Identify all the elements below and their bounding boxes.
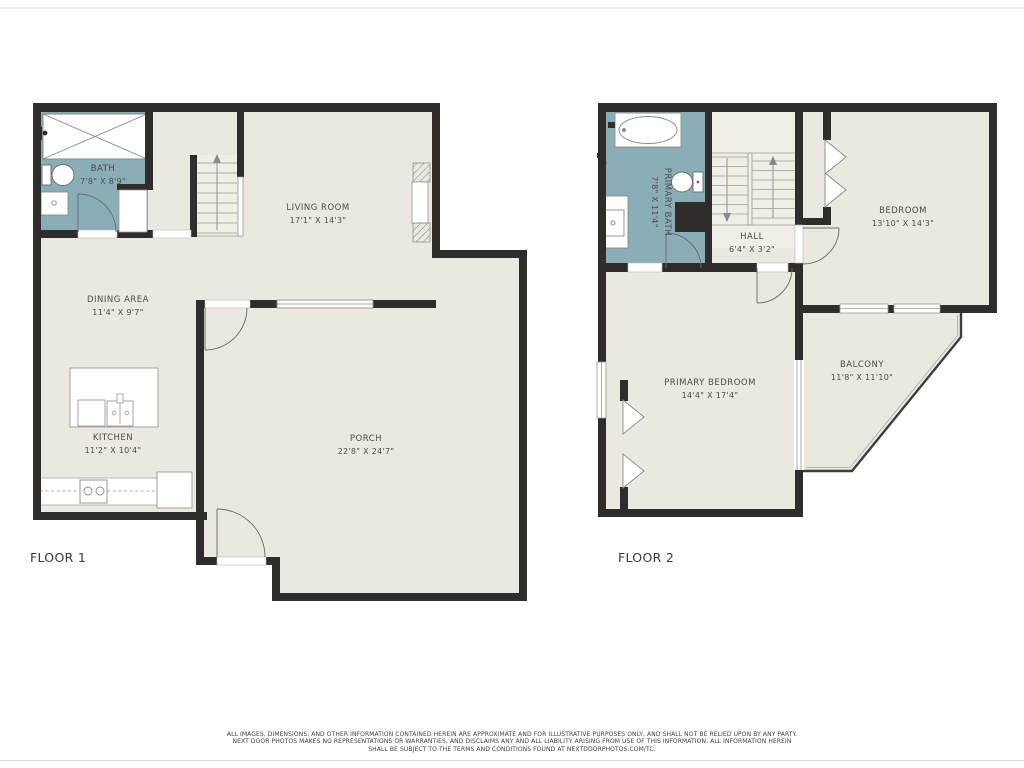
entry-closet (119, 190, 147, 232)
room-name: BALCONY (831, 360, 893, 370)
room-label-bedroom: BEDROOM 13'10" X 14'3" (872, 206, 934, 228)
floor1-label: FLOOR 1 (30, 550, 86, 565)
shower-icon (36, 114, 147, 159)
floor2-plan (597, 103, 997, 517)
room-label-porch: PORCH 22'8" X 24'7" (338, 434, 395, 456)
page-bottom-rule (0, 760, 1024, 761)
sink-icon (41, 192, 68, 215)
room-label-primary-bath: PRIMARY BATH 7'8" X 11'4" (650, 168, 672, 237)
room-name: KITCHEN (85, 433, 142, 443)
balcony-slider-door (794, 360, 804, 470)
disclaimer-text: ALL IMAGES, DIMENSIONS, AND OTHER INFORM… (0, 731, 1024, 753)
fireplace-icon (412, 163, 430, 242)
room-name: DINING AREA (87, 295, 149, 305)
room-name: PORCH (338, 434, 395, 444)
room-name: BEDROOM (872, 206, 934, 216)
room-dims: 22'8" X 24'7" (338, 447, 395, 456)
stair-rail (238, 177, 243, 236)
room-label-balcony: BALCONY 11'8" X 11'10" (831, 360, 893, 382)
room-label-kitchen: KITCHEN 11'2" X 10'4" (85, 433, 142, 455)
toilet-icon (42, 165, 74, 186)
room-dims: 14'4" X 17'4" (664, 391, 756, 400)
room-dims: 7'8" X 11'4" (650, 168, 659, 237)
page-top-rule (0, 8, 1024, 9)
room-name: HALL (729, 232, 775, 242)
toilet-icon (672, 172, 704, 192)
room-label-bath: BATH 7'8" X 8'9" (80, 164, 126, 186)
room-dims: 11'2" X 10'4" (85, 446, 142, 455)
room-name: PRIMARY BEDROOM (664, 378, 756, 388)
disclaimer-line-1: ALL IMAGES, DIMENSIONS, AND OTHER INFORM… (0, 731, 1024, 738)
room-name: PRIMARY BATH (662, 168, 672, 237)
room-dims: 6'4" X 3'2" (729, 245, 775, 254)
bathtub-icon (608, 113, 681, 147)
left-wall-window (597, 362, 606, 418)
balcony-floor (803, 313, 961, 471)
room-dims: 11'8" X 11'10" (831, 373, 893, 382)
room-name: LIVING ROOM (286, 203, 349, 213)
room-dims: 13'10" X 14'3" (872, 219, 934, 228)
room-label-dining-area: DINING AREA 11'4" X 9'7" (87, 295, 149, 317)
room-dims: 11'4" X 9'7" (87, 308, 149, 317)
hall-threshold (153, 230, 191, 238)
disclaimer-line-2: NEXT DOOR PHOTOS MAKES NO REPRESENTATION… (0, 738, 1024, 745)
disclaimer-line-3: SHALL BE SUBJECT TO THE TERMS AND CONDIT… (0, 746, 1024, 753)
dining-porch-window (277, 300, 373, 308)
floor2-label: FLOOR 2 (618, 550, 674, 565)
kitchen-island (70, 368, 158, 427)
room-label-hall: HALL 6'4" X 3'2" (729, 232, 775, 254)
room-name: BATH (80, 164, 126, 174)
floorplan-page: BATH 7'8" X 8'9" LIVING ROOM 17'1" X 14'… (0, 0, 1024, 768)
stove-icon (80, 480, 107, 503)
room-label-primary-bedroom: PRIMARY BEDROOM 14'4" X 17'4" (664, 378, 756, 400)
refrigerator-icon (157, 472, 192, 508)
room-label-living-room: LIVING ROOM 17'1" X 14'3" (286, 203, 349, 225)
room-dims: 17'1" X 14'3" (286, 216, 349, 225)
floorplan-graphics (0, 0, 1024, 768)
room-dims: 7'8" X 8'9" (80, 177, 126, 186)
